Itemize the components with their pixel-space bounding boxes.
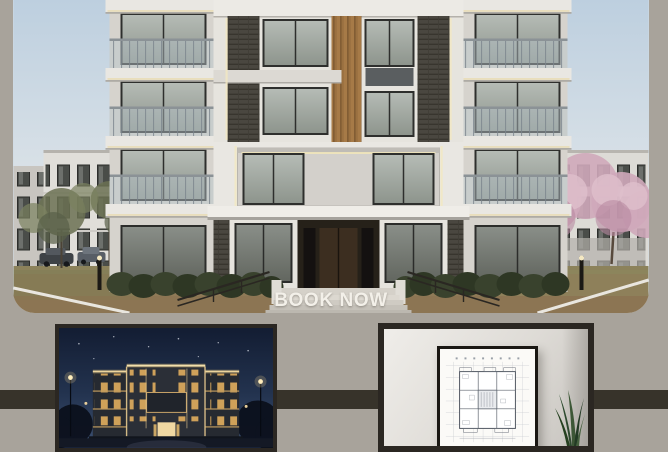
night-building: [89, 364, 243, 441]
spandrel-panel: [366, 68, 414, 86]
hero-day-render: BOOK NOW: [13, 0, 649, 313]
led-strip: [226, 18, 228, 140]
central-tower: [208, 0, 470, 292]
day-scene: [13, 0, 649, 313]
left-balcony-wing: [106, 0, 218, 292]
night-scene: [59, 328, 273, 448]
floorplan-drawing: [440, 349, 535, 451]
glass-balustrades: [464, 39, 568, 207]
lit-feature-panel: [147, 392, 187, 412]
feature-panel: [214, 142, 464, 212]
led-strip: [450, 18, 452, 140]
book-now-cta[interactable]: BOOK NOW: [13, 290, 649, 312]
entrance-canopy: [208, 206, 470, 217]
main-building: [106, 0, 572, 292]
wall-shadow: [562, 329, 588, 446]
lit-entrance: [158, 422, 176, 438]
glass-balustrades: [110, 39, 214, 207]
floorplan-poster: [437, 346, 538, 452]
right-balcony-wing: [460, 0, 572, 292]
night-render-thumbnail: [55, 324, 277, 452]
floorplan-thumbnail: [378, 323, 594, 452]
slate-cladding-right: [418, 16, 450, 142]
flyer-canvas: BOOK NOW: [0, 0, 668, 452]
